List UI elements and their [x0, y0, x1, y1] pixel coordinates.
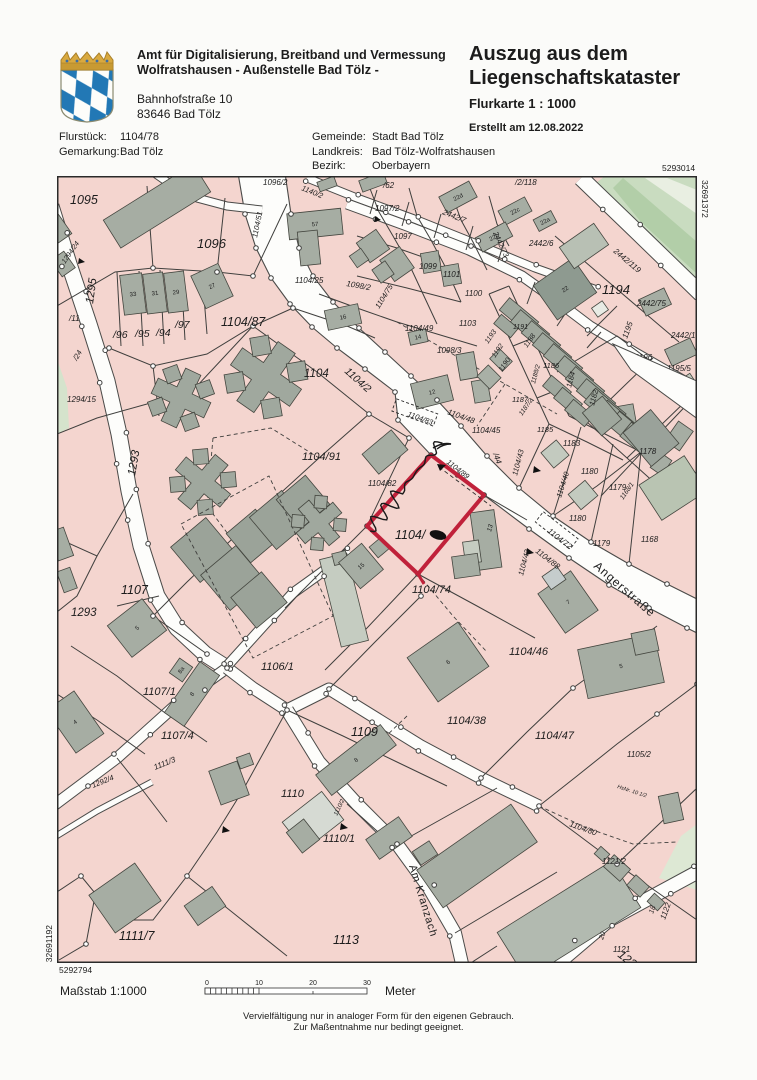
svg-text:1110: 1110: [281, 788, 305, 800]
svg-text:/95: /95: [134, 328, 150, 340]
svg-text:1104/49: 1104/49: [405, 324, 434, 333]
svg-text:1104/82: 1104/82: [368, 479, 397, 488]
svg-text:1104: 1104: [304, 368, 329, 380]
svg-text:1185: 1185: [537, 425, 554, 434]
svg-text:1111/7: 1111/7: [119, 929, 155, 943]
svg-text:57: 57: [311, 222, 319, 229]
svg-text:2442/6: 2442/6: [528, 239, 554, 248]
svg-text:1180: 1180: [581, 467, 599, 476]
svg-text:1096/2: 1096/2: [263, 178, 288, 187]
svg-text:1107/1: 1107/1: [143, 686, 176, 698]
svg-text:1104/87: 1104/87: [221, 315, 266, 329]
svg-text:1105/2: 1105/2: [627, 750, 651, 759]
svg-text:1110/1: 1110/1: [323, 833, 355, 845]
svg-text:/96: /96: [112, 329, 128, 341]
svg-text:1104/25: 1104/25: [295, 276, 324, 285]
svg-text:1106/1: 1106/1: [261, 661, 294, 673]
svg-text:/94: /94: [155, 327, 171, 339]
svg-text:1101: 1101: [443, 270, 460, 279]
svg-text:1179: 1179: [593, 539, 611, 548]
svg-text:1099: 1099: [419, 262, 437, 271]
svg-text:1103: 1103: [459, 319, 477, 328]
svg-text:10: 10: [255, 980, 263, 987]
svg-text:/2/118: /2/118: [514, 178, 537, 187]
svg-text:1104/38: 1104/38: [447, 715, 487, 727]
svg-text:1191: 1191: [513, 324, 528, 331]
svg-text:/11: /11: [68, 314, 80, 323]
svg-text:1121/2: 1121/2: [602, 857, 626, 866]
svg-text:1107: 1107: [121, 583, 149, 597]
svg-text:1180: 1180: [569, 514, 587, 523]
svg-text:1096: 1096: [197, 236, 227, 251]
svg-text:1194: 1194: [602, 282, 630, 297]
svg-text:1107/4: 1107/4: [161, 730, 194, 742]
svg-text:2442/75: 2442/75: [636, 299, 666, 308]
svg-text:1104/45: 1104/45: [472, 426, 501, 435]
svg-text:/97: /97: [174, 319, 191, 331]
svg-text:1293: 1293: [71, 607, 97, 619]
svg-text:1183: 1183: [563, 439, 581, 448]
svg-text:1097: 1097: [394, 232, 412, 241]
svg-text:1095: 1095: [70, 193, 98, 207]
svg-text:1186: 1186: [543, 361, 560, 370]
svg-text:1104/74: 1104/74: [412, 584, 451, 596]
svg-text:1109: 1109: [351, 725, 378, 739]
svg-text:1104/: 1104/: [395, 528, 427, 542]
svg-text:2442/1: 2442/1: [670, 331, 695, 340]
svg-text:/62: /62: [382, 181, 395, 190]
svg-text:1097/2: 1097/2: [375, 204, 400, 213]
svg-text:1178: 1178: [639, 447, 657, 456]
svg-text:1098/3: 1098/3: [437, 346, 462, 355]
svg-text:1168: 1168: [641, 535, 659, 544]
svg-text:30: 30: [363, 980, 371, 987]
svg-text:1104/47: 1104/47: [535, 730, 575, 742]
svg-text:1104/46: 1104/46: [509, 646, 549, 658]
svg-text:1104/91: 1104/91: [302, 451, 341, 463]
svg-text:0: 0: [205, 980, 209, 987]
svg-text:1100: 1100: [465, 289, 483, 298]
svg-text:20: 20: [309, 980, 317, 987]
svg-text:1113: 1113: [333, 933, 359, 947]
svg-text:1294/15: 1294/15: [67, 395, 96, 404]
